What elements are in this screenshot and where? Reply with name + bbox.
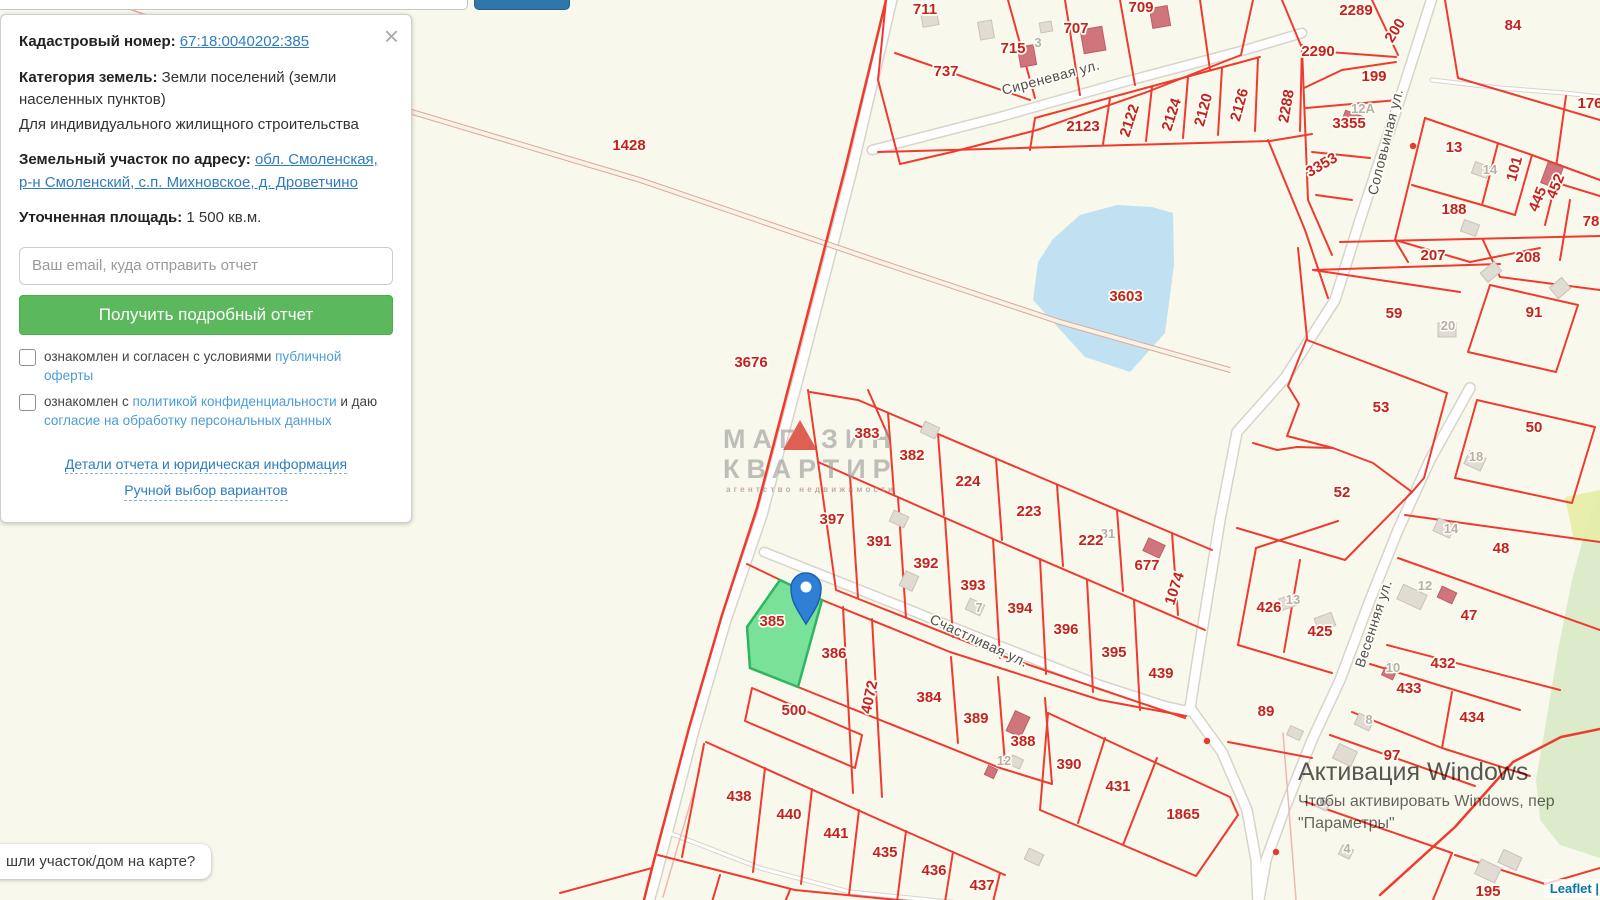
parcel-label: 13 <box>1446 139 1463 156</box>
parcel-label: 3676 <box>734 354 767 371</box>
parcel-label: 1428 <box>612 137 645 154</box>
parcel-label: 440 <box>776 806 801 823</box>
parcel-label: 384 <box>916 689 942 706</box>
parcel-label: 195 <box>1475 883 1500 900</box>
privacy-consent-row: ознакомлен с политикой конфиденциальност… <box>19 392 393 431</box>
parcel-label: 97 <box>1384 747 1401 764</box>
cadastral-number-label: Кадастровый номер: <box>19 33 176 50</box>
parcel-label: 711 <box>913 1 937 18</box>
parcel-label: 382 <box>899 447 924 464</box>
parcel-label: 435 <box>872 844 897 861</box>
parcel-label: 432 <box>1430 655 1455 672</box>
parcel-label: 385 <box>759 613 784 630</box>
cadastral-map-app: МАГ ЗИН КВАРТИР агентство недвижимости С… <box>0 0 1600 900</box>
parcel-label: 208 <box>1515 249 1540 266</box>
parcel-label: 389 <box>963 710 988 727</box>
parcel-label: 391 <box>866 533 891 550</box>
parcel-label: 222 <box>1078 532 1103 549</box>
offer-consent-text: ознакомлен и согласен с условиями публич… <box>44 347 393 386</box>
category-row: Категория земель: Земли поселений (земли… <box>19 67 393 112</box>
house-number-label: 7 <box>975 600 982 615</box>
cadastral-number-link[interactable]: 67:18:0040202:385 <box>180 33 309 50</box>
parcel-label: 426 <box>1256 599 1281 616</box>
parcel-label: 59 <box>1386 305 1403 322</box>
parcel-label: 386 <box>821 645 846 662</box>
report-details-link[interactable]: Детали отчета и юридическая информация <box>65 455 347 474</box>
area-label: Уточненная площадь: <box>19 209 182 226</box>
house-number-label: 10 <box>1386 660 1400 675</box>
category-label: Категория земель: <box>19 69 157 86</box>
house-number-label: 12 <box>1418 578 1432 593</box>
parcel-label: 395 <box>1101 644 1126 661</box>
svg-text:агентство недвижимости: агентство недвижимости <box>726 485 896 494</box>
area-row: Уточненная площадь: 1 500 кв.м. <box>19 207 393 230</box>
parcel-label: 207 <box>1420 247 1445 264</box>
privacy-consent-text: ознакомлен с политикой конфиденциальност… <box>44 392 393 431</box>
cadastral-number-row: Кадастровый номер: 67:18:0040202:385 <box>19 31 393 54</box>
search-input[interactable] <box>0 0 468 10</box>
leaflet-attribution[interactable]: Leaflet | <box>1544 879 1600 898</box>
parcel-label: 433 <box>1396 680 1421 697</box>
email-field[interactable] <box>19 247 393 285</box>
privacy-consent-checkbox[interactable] <box>19 394 36 411</box>
parcel-label: 2290 <box>1301 43 1334 60</box>
parcel-label: 709 <box>1128 0 1153 16</box>
parcel-label: 715 <box>1000 40 1025 57</box>
address-label: Земельный участок по адресу: <box>19 151 251 168</box>
parcel-label: 383 <box>854 425 879 442</box>
map-point-marker <box>1410 143 1416 149</box>
parcel-label: 84 <box>1505 17 1522 34</box>
parcel-label: 188 <box>1441 201 1466 218</box>
parcel-label: 441 <box>823 825 848 842</box>
house-number-label: 12А <box>1351 101 1375 116</box>
parcel-label: 393 <box>960 577 985 594</box>
parcel-label: 436 <box>921 862 946 879</box>
parcel-label: 396 <box>1053 621 1078 638</box>
house-number-label: 18 <box>1469 449 1483 464</box>
parcel-label: 3603 <box>1109 288 1142 305</box>
house-number-label: 6 <box>1319 794 1326 809</box>
parcel-label: 47 <box>1461 607 1478 624</box>
parcel-info-panel: × Кадастровый номер: 67:18:0040202:385 К… <box>0 14 412 523</box>
house-number-label: 12 <box>997 753 1011 768</box>
offer-consent-row: ознакомлен и согласен с условиями публич… <box>19 347 393 386</box>
personal-data-consent-link[interactable]: согласие на обработку персональных данны… <box>44 413 332 428</box>
address-row: Земельный участок по адресу: обл. Смолен… <box>19 149 393 194</box>
house-number-label: 14 <box>1444 521 1459 536</box>
offer-consent-checkbox[interactable] <box>19 349 36 366</box>
parcel-label: 390 <box>1056 756 1081 773</box>
category-extra: Для индивидуального жилищного строительс… <box>19 114 393 137</box>
parcel-label: 707 <box>1063 20 1088 37</box>
house-number-label: 4 <box>1343 841 1351 856</box>
house-number-label: 13 <box>1286 592 1300 607</box>
parcel-label: 737 <box>933 63 958 80</box>
parcel-label: 2123 <box>1066 118 1099 135</box>
map-point-marker <box>1204 738 1210 744</box>
svg-text:КВАРТИР: КВАРТИР <box>723 454 898 484</box>
parcel-label: 224 <box>955 473 981 490</box>
house-number-label: 3 <box>1034 35 1041 50</box>
map-help-tooltip[interactable]: шли участок/дом на карте? <box>0 844 211 879</box>
parcel-label: 223 <box>1016 503 1041 520</box>
parcel-label: 394 <box>1007 600 1033 617</box>
parcel-label: 3355 <box>1332 115 1365 132</box>
parcel-label: 199 <box>1361 68 1386 85</box>
parcel-label: 2289 <box>1339 2 1372 19</box>
parcel-label: 500 <box>781 702 806 719</box>
parcel-label: 438 <box>726 788 751 805</box>
parcel-label: 388 <box>1010 733 1035 750</box>
close-icon[interactable]: × <box>384 23 399 49</box>
parcel-label: 52 <box>1334 484 1351 501</box>
privacy-policy-link[interactable]: политикой конфиденциальности <box>132 394 336 409</box>
parcel-label: 425 <box>1307 623 1332 640</box>
parcel-label: 439 <box>1148 665 1173 682</box>
house-number-label: 14 <box>1483 162 1498 177</box>
parcel-label: 78 <box>1583 213 1600 230</box>
get-report-button[interactable]: Получить подробный отчет <box>19 295 393 335</box>
parcel-label: 53 <box>1373 399 1390 416</box>
parcel-label: 434 <box>1459 709 1485 726</box>
house-number-label: 20 <box>1441 318 1455 333</box>
parcel-label: 48 <box>1493 540 1510 557</box>
parcel-label: 437 <box>969 877 994 894</box>
manual-selection-link[interactable]: Ручной выбор вариантов <box>124 481 288 500</box>
panel-footer-links: Детали отчета и юридическая информация Р… <box>19 451 393 504</box>
parcel-label: 1865 <box>1166 806 1199 823</box>
house-number-label: 8 <box>1365 712 1372 727</box>
parcel-label: 176 <box>1577 95 1600 112</box>
parcel-label: 677 <box>1134 557 1159 574</box>
parcel-label: 392 <box>913 555 938 572</box>
parcel-label: 431 <box>1105 778 1130 795</box>
parcel-label: 50 <box>1526 419 1543 436</box>
parcel-label: 397 <box>819 511 844 528</box>
map-point-marker <box>1273 849 1279 855</box>
area-value: 1 500 кв.м. <box>186 209 261 226</box>
search-button[interactable] <box>474 0 570 10</box>
parcel-label: 89 <box>1258 703 1275 720</box>
parcel-label: 91 <box>1526 304 1543 321</box>
